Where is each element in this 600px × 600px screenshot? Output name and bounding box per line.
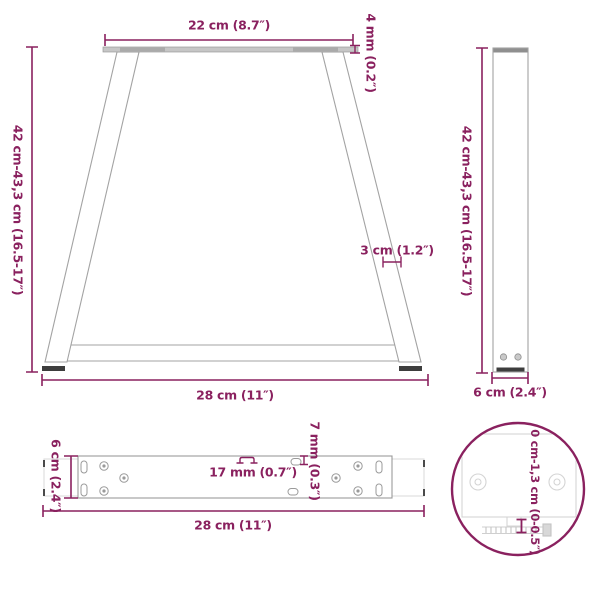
front-crossbar: [67, 345, 399, 361]
front-left-foot: [42, 366, 65, 371]
front-view-geometry: [42, 47, 422, 371]
dim-plate-depth: [64, 456, 78, 498]
side-height-label: 42 cm-43,3 cm (16.5-17″): [460, 126, 475, 297]
side-screw-hole-right: [515, 354, 521, 360]
side-depth-label: 6 cm (2.4″): [473, 385, 547, 400]
front-top-width-label: 22 cm (8.7″): [188, 18, 270, 33]
plate-right-foot-outline: [392, 459, 424, 496]
side-foot: [497, 368, 525, 372]
front-right-leg: [322, 52, 421, 362]
plate-slot-width-label: 7 mm (0.3″): [308, 421, 323, 500]
front-right-joint: [293, 48, 338, 52]
side-leg-body: [493, 48, 528, 372]
front-base-width-label: 28 cm (11″): [196, 388, 274, 403]
detail-foot-adjust-label: 0 cm-1,3 cm (0-0.5″): [528, 429, 542, 555]
front-right-foot: [399, 366, 422, 371]
dim-side-height: [476, 48, 488, 373]
side-screw-hole-left: [500, 354, 506, 360]
front-left-joint: [120, 48, 165, 52]
dim-front-height: [26, 47, 38, 372]
front-left-leg: [45, 52, 139, 362]
front-leg-width-label: 3 cm (1.2″): [360, 243, 434, 258]
plate-length-label: 28 cm (11″): [194, 518, 272, 533]
side-top-plate-edge: [494, 49, 528, 53]
dim-plate-length: [43, 505, 424, 517]
technical-drawing: [0, 0, 600, 600]
dim-top-width: [105, 34, 353, 46]
front-height-label: 42 cm-43,3 cm (16.5-17″): [11, 125, 26, 296]
dim-front-base-width: [42, 374, 428, 386]
plate-depth-label: 6 cm (2.4″): [49, 439, 64, 513]
diagram-canvas: 22 cm (8.7″) 4 mm (0.2″) 42 cm-43,3 cm (…: [0, 0, 600, 600]
plate-hole-width-label: 17 mm (0.7″): [209, 465, 297, 480]
side-view-geometry: [493, 48, 528, 372]
detail-view: [452, 423, 584, 555]
front-plate-thickness-label: 4 mm (0.2″): [364, 13, 379, 92]
dim-side-depth: [492, 372, 528, 384]
